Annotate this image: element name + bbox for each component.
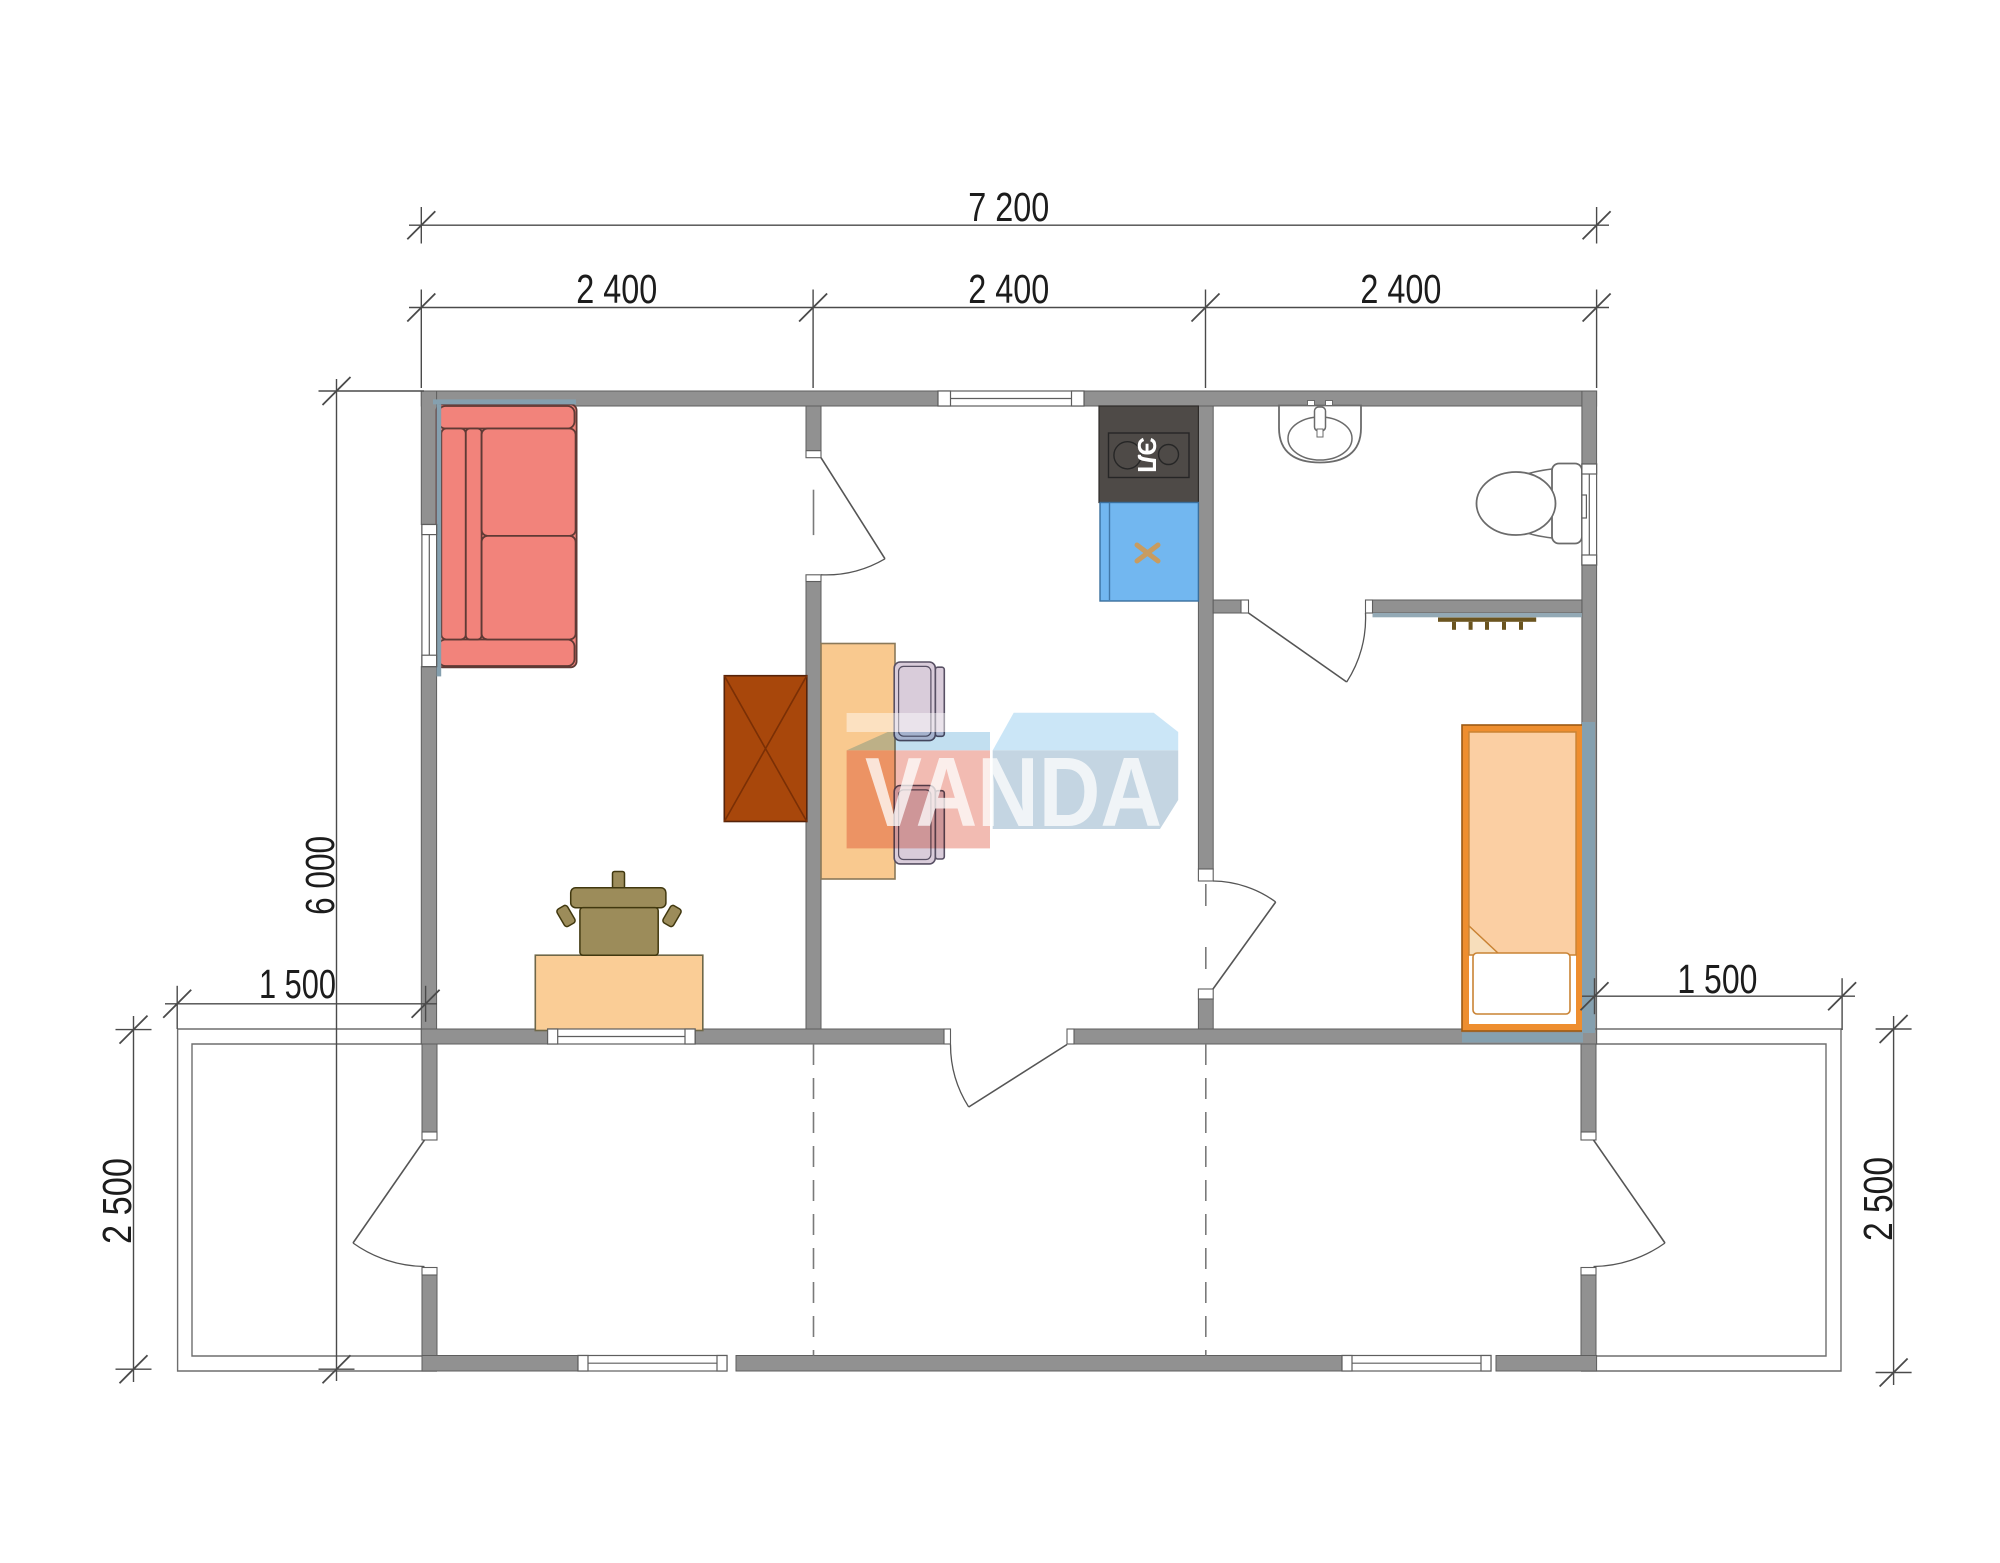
svg-text:2 500: 2 500	[94, 1158, 140, 1244]
svg-text:1 500: 1 500	[1677, 956, 1757, 1002]
svg-text:2 400: 2 400	[968, 266, 1049, 312]
svg-text:7 200: 7 200	[968, 184, 1049, 230]
svg-text:6 000: 6 000	[297, 836, 343, 915]
svg-text:2 500: 2 500	[1855, 1157, 1901, 1241]
svg-text:2 400: 2 400	[1360, 266, 1441, 312]
svg-text:1 500: 1 500	[259, 961, 336, 1007]
svg-text:ЭЛ: ЭЛ	[1132, 437, 1162, 473]
svg-text:2 400: 2 400	[576, 266, 657, 312]
svg-text:VANDA: VANDA	[865, 737, 1162, 847]
